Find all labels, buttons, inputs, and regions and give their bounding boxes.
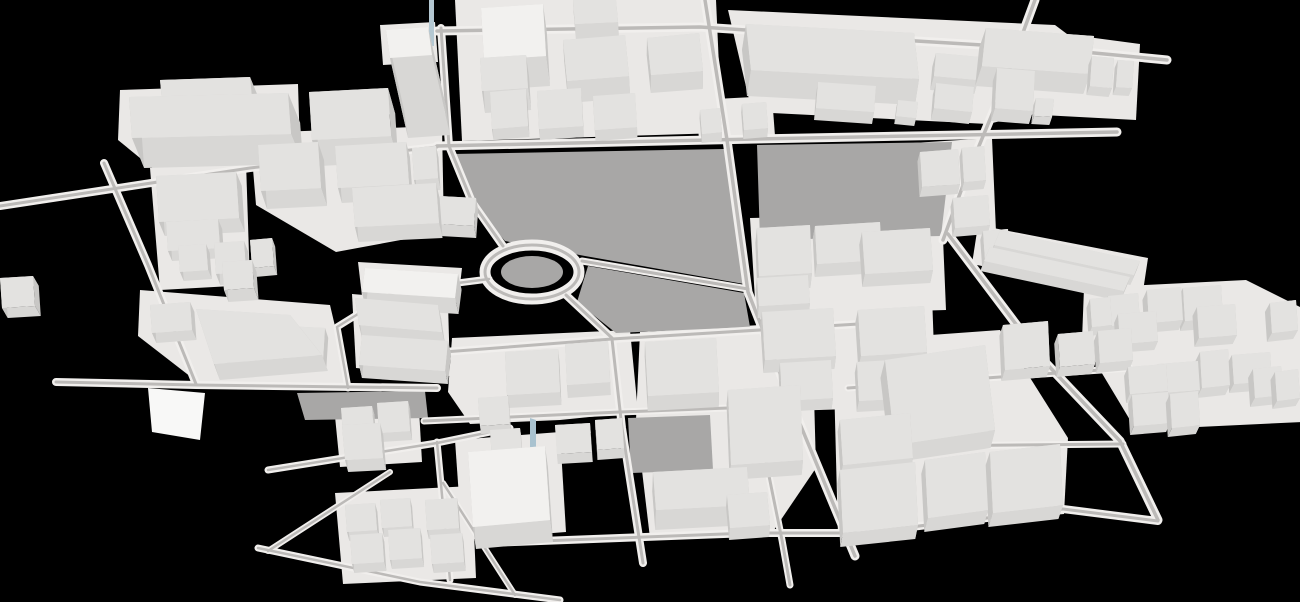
building-roof	[478, 396, 510, 426]
building-wall	[557, 452, 593, 464]
building-roof	[505, 349, 560, 395]
building	[490, 89, 529, 140]
building-roof	[345, 503, 377, 532]
building	[647, 33, 703, 93]
roundabout-island	[501, 256, 563, 288]
building	[1054, 331, 1095, 377]
building-roof	[593, 93, 637, 130]
building-roof	[1003, 321, 1050, 370]
building-roof	[490, 89, 528, 129]
building	[985, 444, 1063, 527]
building	[595, 418, 624, 460]
building	[350, 533, 386, 573]
building-wall	[261, 188, 327, 209]
building	[726, 492, 770, 540]
building-roof	[1270, 300, 1298, 333]
building-roof	[438, 196, 476, 226]
building-roof	[250, 238, 274, 268]
building	[837, 462, 918, 547]
building	[573, 0, 619, 39]
building-roof	[762, 308, 836, 360]
building-roof	[555, 423, 592, 454]
building-roof	[352, 183, 439, 227]
building	[1128, 392, 1170, 435]
building	[438, 196, 478, 238]
building	[1195, 349, 1230, 398]
building-roof	[953, 195, 990, 228]
building	[991, 68, 1035, 124]
building-roof	[990, 444, 1063, 513]
building-wall	[224, 288, 259, 302]
building-roof	[537, 88, 583, 129]
building	[894, 100, 918, 126]
building	[1031, 98, 1054, 125]
building-roof	[727, 492, 770, 528]
building	[1094, 328, 1133, 373]
building-roof	[258, 142, 321, 191]
building-roof	[858, 306, 927, 356]
building	[1113, 60, 1134, 96]
city-map-canvas[interactable]	[0, 0, 1300, 602]
building	[645, 338, 719, 411]
building	[555, 423, 593, 464]
building	[931, 83, 974, 124]
building-roof	[425, 498, 459, 530]
building-roof	[1090, 297, 1112, 327]
building-roof	[565, 341, 610, 385]
building	[959, 146, 986, 191]
building-roof	[1098, 328, 1133, 363]
building	[150, 302, 196, 343]
building-roof	[925, 452, 988, 518]
building-roof	[728, 385, 803, 465]
building-roof	[156, 172, 239, 222]
building	[1270, 369, 1300, 409]
building-roof	[1200, 349, 1230, 388]
building	[0, 276, 41, 318]
building-roof	[647, 33, 703, 75]
building-wall	[345, 458, 386, 472]
building-roof	[982, 28, 1094, 74]
building	[921, 452, 988, 532]
building-roof	[757, 225, 812, 276]
building	[342, 423, 386, 472]
building	[505, 349, 561, 408]
building-roof	[1275, 369, 1300, 401]
building	[1086, 56, 1114, 97]
building	[741, 102, 768, 139]
building-roof	[335, 142, 409, 188]
building-roof	[480, 55, 528, 91]
building-roof	[430, 533, 464, 564]
building-roof	[700, 108, 722, 134]
building-roof	[934, 83, 974, 112]
building-roof	[178, 244, 208, 272]
building	[258, 142, 327, 209]
park-center-south	[628, 415, 713, 473]
building-roof	[746, 24, 919, 79]
building	[1192, 304, 1237, 347]
building-roof	[380, 498, 412, 528]
building-roof	[962, 146, 986, 182]
building-roof	[350, 533, 384, 564]
building-roof	[934, 53, 980, 80]
building	[950, 195, 990, 237]
building	[1166, 391, 1200, 437]
building-roof	[920, 149, 960, 187]
building-roof	[1132, 392, 1170, 426]
building	[388, 528, 424, 569]
building-roof	[1128, 364, 1168, 394]
building-roof	[840, 462, 918, 533]
building	[352, 183, 443, 242]
building	[425, 498, 461, 539]
building	[593, 93, 637, 141]
building-roof	[840, 413, 913, 465]
building	[859, 228, 933, 287]
building	[430, 533, 466, 573]
building-roof	[377, 401, 410, 433]
building-roof	[0, 276, 35, 308]
building	[917, 149, 960, 197]
building-roof	[573, 0, 618, 24]
map-stage	[0, 0, 1300, 602]
building	[1265, 300, 1298, 342]
building	[222, 260, 259, 302]
building-roof	[342, 423, 383, 460]
building-roof	[1116, 60, 1134, 88]
building	[814, 82, 876, 124]
building-roof	[222, 260, 254, 290]
building-wall	[1031, 116, 1052, 125]
ground-lot	[148, 388, 205, 440]
building-roof	[896, 100, 918, 118]
building-roof	[1058, 331, 1095, 367]
building-roof	[1034, 98, 1054, 117]
building-roof	[388, 528, 422, 560]
building-wall	[1113, 87, 1132, 96]
building-roof	[1197, 304, 1237, 338]
building-roof	[309, 88, 391, 140]
building	[727, 385, 803, 480]
building	[999, 321, 1050, 381]
building-wall	[597, 448, 624, 460]
building-roof	[481, 4, 546, 60]
building-roof	[742, 102, 768, 130]
building-roof	[757, 275, 810, 306]
building-roof	[595, 418, 624, 450]
building-roof	[645, 338, 719, 396]
building	[178, 244, 212, 281]
building-roof	[563, 35, 629, 81]
building	[700, 108, 722, 143]
building-roof	[129, 93, 291, 138]
building-wall	[438, 224, 476, 238]
building-wall	[2, 306, 41, 318]
building	[478, 396, 511, 434]
building-roof	[995, 68, 1035, 111]
building-roof	[468, 446, 550, 527]
building-roof	[862, 228, 933, 274]
building	[537, 88, 584, 140]
building-roof	[359, 335, 448, 371]
building-roof	[386, 27, 432, 58]
building-roof	[1170, 391, 1200, 428]
building	[565, 341, 611, 398]
building	[468, 446, 553, 549]
building	[359, 335, 451, 384]
building-roof	[150, 302, 192, 333]
building-roof	[1090, 56, 1114, 88]
building-roof	[412, 146, 438, 180]
building-roof	[816, 82, 876, 112]
